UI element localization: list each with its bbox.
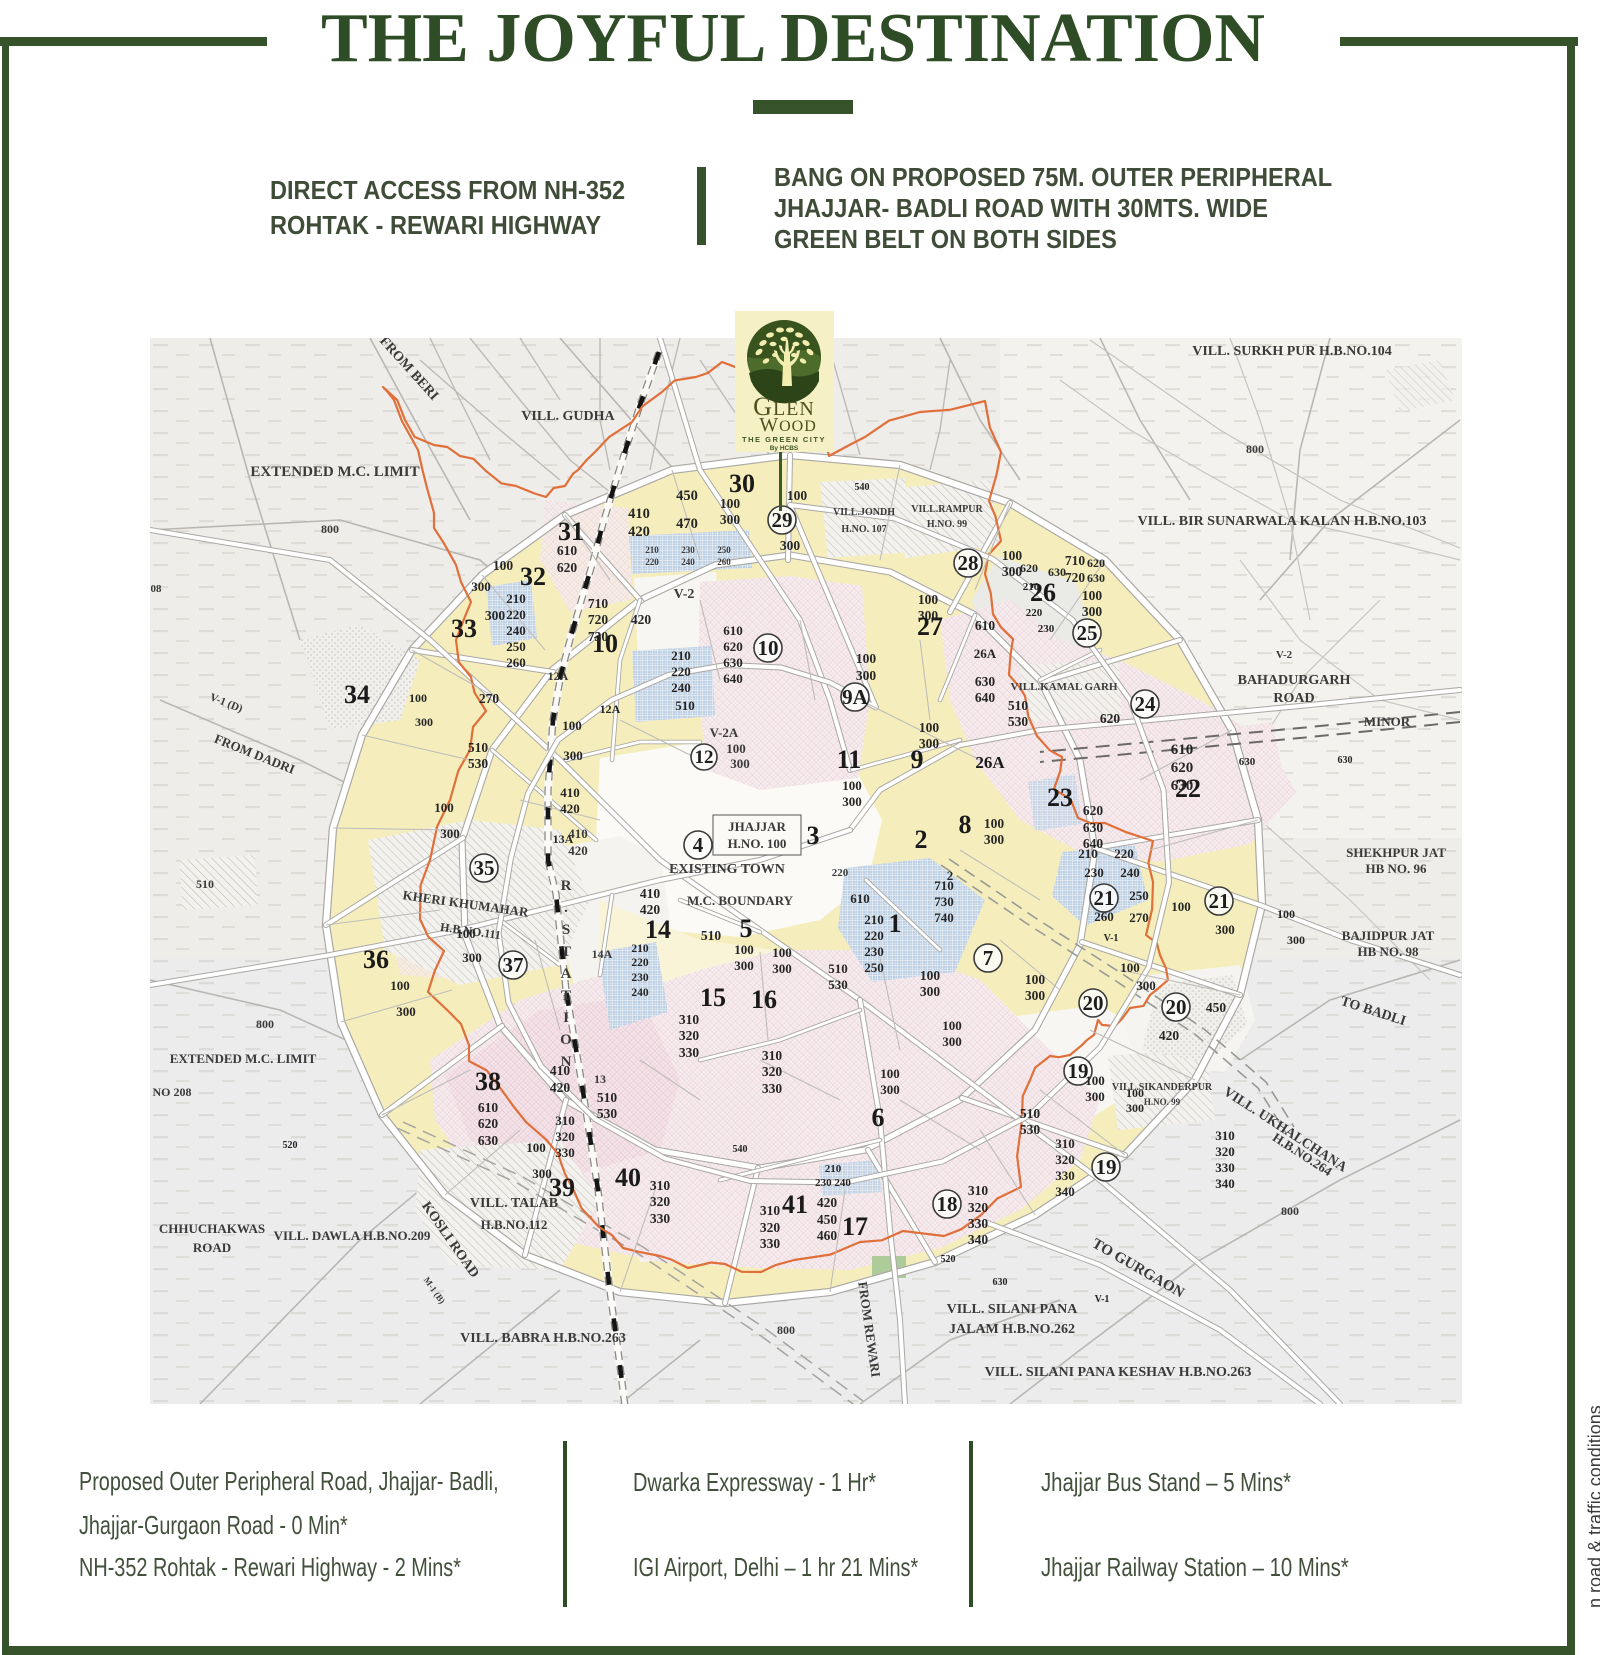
svg-text:340: 340 <box>1055 1184 1075 1199</box>
svg-text:630: 630 <box>1083 820 1104 835</box>
svg-text:V-1: V-1 <box>1095 1294 1110 1305</box>
svg-text:100: 100 <box>920 968 941 983</box>
svg-text:VILL. SILANI PANA KESHAV H.B.: VILL. SILANI PANA KESHAV H.B.NO.263 <box>985 1365 1252 1380</box>
svg-text:310: 310 <box>650 1178 671 1193</box>
svg-text:520: 520 <box>941 1254 956 1265</box>
svg-text:39: 39 <box>549 1173 575 1202</box>
svg-text:300: 300 <box>1082 604 1103 619</box>
svg-text:17: 17 <box>842 1212 868 1241</box>
svg-text:450: 450 <box>1206 1000 1227 1015</box>
svg-text:H.NO. 99: H.NO. 99 <box>927 519 967 530</box>
svg-text:220: 220 <box>645 557 659 567</box>
svg-text:610: 610 <box>478 1100 499 1115</box>
svg-text:VILL. TALAB: VILL. TALAB <box>470 1196 558 1211</box>
svg-text:300: 300 <box>856 668 877 683</box>
svg-text:33: 33 <box>451 614 477 643</box>
svg-text:220: 220 <box>832 867 849 879</box>
svg-text:310: 310 <box>679 1012 700 1027</box>
svg-text:720: 720 <box>1065 570 1086 585</box>
svg-text:330: 330 <box>679 1045 700 1060</box>
svg-text:30: 30 <box>729 469 755 498</box>
svg-text:26A: 26A <box>974 646 997 661</box>
svg-text:220: 220 <box>671 664 691 679</box>
svg-text:300: 300 <box>563 748 583 763</box>
svg-text:460: 460 <box>817 1228 838 1243</box>
svg-text:VILL. SURKH PUR H.B.NO.104: VILL. SURKH PUR H.B.NO.104 <box>1192 344 1392 359</box>
svg-text:420: 420 <box>628 524 650 540</box>
svg-text:HB NO. 98: HB NO. 98 <box>1357 944 1419 959</box>
svg-text:450: 450 <box>817 1212 838 1227</box>
svg-text:310: 310 <box>968 1183 989 1198</box>
svg-text:250: 250 <box>864 960 884 975</box>
svg-text:BAJIDPUR JAT: BAJIDPUR JAT <box>1342 928 1435 943</box>
svg-text:1: 1 <box>889 909 902 938</box>
svg-text:24: 24 <box>1135 692 1157 716</box>
svg-text:JALAM H.B.NO.262: JALAM H.B.NO.262 <box>949 1322 1075 1337</box>
svg-text:THE GREEN CITY: THE GREEN CITY <box>742 435 826 444</box>
svg-text:WOOD: WOOD <box>759 414 817 436</box>
svg-text:240: 240 <box>506 623 526 638</box>
svg-text:100: 100 <box>1025 972 1046 987</box>
svg-text:13: 13 <box>594 1072 606 1086</box>
svg-text:100: 100 <box>390 978 410 993</box>
svg-text:7: 7 <box>983 946 994 970</box>
svg-text:230: 230 <box>631 972 649 984</box>
svg-text:240: 240 <box>671 680 691 695</box>
svg-text:V-1: V-1 <box>1104 933 1119 944</box>
svg-text:420: 420 <box>817 1195 838 1210</box>
svg-text:10: 10 <box>758 636 779 660</box>
svg-text:300: 300 <box>440 826 460 841</box>
svg-text:320: 320 <box>679 1028 700 1043</box>
svg-text:640: 640 <box>975 690 996 705</box>
svg-text:VILL.RAMPUR: VILL.RAMPUR <box>911 504 983 515</box>
svg-text:300: 300 <box>415 715 433 729</box>
svg-text:20: 20 <box>1166 995 1187 1019</box>
svg-text:420: 420 <box>640 902 661 917</box>
svg-text:620: 620 <box>478 1116 499 1131</box>
svg-text:21: 21 <box>1094 886 1115 910</box>
svg-text:260: 260 <box>717 557 731 567</box>
svg-text:230: 230 <box>1038 623 1055 635</box>
svg-text:12A: 12A <box>548 669 569 683</box>
svg-text:By HCBS: By HCBS <box>770 445 799 452</box>
svg-text:630: 630 <box>1239 756 1256 768</box>
svg-text:35: 35 <box>474 856 495 880</box>
svg-text:330: 330 <box>1055 1168 1075 1183</box>
svg-text:620: 620 <box>1171 760 1194 776</box>
svg-text:300: 300 <box>1025 988 1046 1003</box>
svg-text:210: 210 <box>864 912 884 927</box>
svg-text:640: 640 <box>723 671 743 686</box>
svg-text:100: 100 <box>434 800 454 815</box>
svg-text:630: 630 <box>1087 571 1105 585</box>
svg-text:320: 320 <box>760 1220 781 1235</box>
svg-text:19: 19 <box>1096 1155 1117 1179</box>
svg-text:14: 14 <box>645 915 671 944</box>
svg-text:540: 540 <box>855 482 870 493</box>
svg-text:410: 410 <box>640 886 661 901</box>
svg-text:38: 38 <box>475 1067 501 1096</box>
svg-text:330: 330 <box>760 1236 781 1251</box>
svg-text:6: 6 <box>872 1103 885 1132</box>
svg-text:470: 470 <box>676 516 698 532</box>
svg-text:300: 300 <box>772 961 792 976</box>
svg-text:340: 340 <box>968 1232 989 1247</box>
svg-text:220: 220 <box>1114 846 1134 861</box>
svg-text:40: 40 <box>615 1163 641 1192</box>
svg-text:ROAD: ROAD <box>193 1240 231 1255</box>
svg-text:210: 210 <box>506 591 526 606</box>
svg-text:620: 620 <box>1083 803 1104 818</box>
svg-text:800: 800 <box>777 1323 795 1337</box>
svg-text:HB NO. 96: HB NO. 96 <box>1365 861 1427 876</box>
svg-text:100: 100 <box>1277 907 1295 921</box>
svg-text:220: 220 <box>631 957 649 969</box>
svg-text:100: 100 <box>493 558 514 573</box>
svg-text:300: 300 <box>1126 1101 1144 1115</box>
svg-text:330: 330 <box>1215 1160 1235 1175</box>
svg-text:3: 3 <box>807 821 820 850</box>
svg-text:720: 720 <box>588 612 609 627</box>
svg-text:210: 210 <box>671 648 691 663</box>
svg-text:510: 510 <box>828 961 848 976</box>
svg-text:ROAD: ROAD <box>1273 691 1314 706</box>
svg-text:210: 210 <box>631 943 649 955</box>
svg-text:100: 100 <box>1120 960 1140 975</box>
svg-text:610: 610 <box>723 623 743 638</box>
svg-text:270: 270 <box>1129 910 1149 925</box>
svg-text:100: 100 <box>984 816 1005 831</box>
svg-text:SHEKHPUR JAT: SHEKHPUR JAT <box>1346 845 1446 860</box>
svg-text:340: 340 <box>1215 1176 1235 1191</box>
svg-text:.: . <box>564 900 568 916</box>
svg-text:250: 250 <box>506 639 526 654</box>
svg-text:300: 300 <box>730 756 750 771</box>
svg-text:230 240: 230 240 <box>815 1177 851 1189</box>
svg-text:CHHUCHAKWAS: CHHUCHAKWAS <box>159 1221 265 1236</box>
svg-text:EXTENDED M.C. LIMIT: EXTENDED M.C. LIMIT <box>250 464 419 480</box>
svg-text:510: 510 <box>701 928 722 943</box>
svg-text:37: 37 <box>503 953 524 977</box>
svg-text:41: 41 <box>782 1190 808 1219</box>
svg-text:210: 210 <box>825 1163 842 1175</box>
svg-text:300: 300 <box>720 512 741 527</box>
svg-text:300: 300 <box>471 579 491 594</box>
svg-text:620: 620 <box>1020 561 1038 575</box>
svg-text:VILL. SILANI PANA: VILL. SILANI PANA <box>947 1302 1079 1317</box>
svg-text:300: 300 <box>1136 978 1156 993</box>
svg-text:530: 530 <box>1008 714 1029 729</box>
svg-text:320: 320 <box>968 1200 989 1215</box>
svg-text:420: 420 <box>1159 1028 1180 1043</box>
svg-text:320: 320 <box>650 1194 671 1209</box>
svg-text:240: 240 <box>631 987 649 999</box>
svg-text:510: 510 <box>468 740 489 755</box>
svg-text:100: 100 <box>1171 899 1191 914</box>
svg-text:18: 18 <box>937 1192 958 1216</box>
svg-text:16: 16 <box>751 985 777 1014</box>
svg-text:220: 220 <box>506 607 526 622</box>
svg-text:I: I <box>563 1010 569 1026</box>
svg-text:32: 32 <box>520 562 546 591</box>
svg-text:630: 630 <box>1171 778 1194 794</box>
svg-text:31: 31 <box>558 517 584 546</box>
svg-text:A: A <box>561 966 572 982</box>
svg-text:25: 25 <box>1077 621 1098 645</box>
svg-text:VILL. BIR SUNARWALA KALAN H: VILL. BIR SUNARWALA KALAN H.B.NO.103 <box>1138 514 1427 529</box>
svg-text:12: 12 <box>695 747 714 768</box>
svg-text:300: 300 <box>485 608 506 623</box>
svg-text:MINOR: MINOR <box>1364 714 1411 729</box>
svg-text:NO 208: NO 208 <box>153 1085 192 1099</box>
svg-text:100: 100 <box>842 778 862 793</box>
svg-text:28: 28 <box>958 551 979 575</box>
svg-text:300: 300 <box>942 1034 962 1049</box>
svg-text:JHAJJAR: JHAJJAR <box>728 819 786 834</box>
svg-text:800: 800 <box>256 1017 274 1031</box>
svg-text:300: 300 <box>880 1082 900 1097</box>
svg-text:330: 330 <box>555 1145 575 1160</box>
svg-text:13A: 13A <box>553 832 574 846</box>
svg-text:08: 08 <box>151 583 163 595</box>
svg-text:270: 270 <box>479 691 500 706</box>
svg-text:9A: 9A <box>842 685 869 709</box>
svg-text:310: 310 <box>1215 1128 1235 1143</box>
svg-text:300: 300 <box>842 794 862 809</box>
svg-text:710: 710 <box>1065 553 1086 568</box>
svg-text:300: 300 <box>920 984 941 999</box>
svg-text:800: 800 <box>1246 442 1264 456</box>
svg-text:710: 710 <box>934 878 954 893</box>
svg-text:300: 300 <box>396 1004 416 1019</box>
svg-text:800: 800 <box>321 522 339 536</box>
svg-text:530: 530 <box>1020 1122 1041 1137</box>
svg-text:H.NO. 99: H.NO. 99 <box>1144 1097 1181 1107</box>
svg-text:100: 100 <box>1126 1086 1144 1100</box>
svg-text:300: 300 <box>532 1166 552 1181</box>
svg-text:220: 220 <box>1026 607 1043 619</box>
svg-text:100: 100 <box>856 651 877 666</box>
svg-text:V-2: V-2 <box>1276 649 1293 661</box>
svg-text:540: 540 <box>733 1144 748 1155</box>
svg-text:310: 310 <box>760 1203 781 1218</box>
svg-text:300: 300 <box>918 608 939 623</box>
svg-text:H.NO. 100: H.NO. 100 <box>728 836 787 851</box>
svg-text:12A: 12A <box>600 702 621 716</box>
svg-text:800: 800 <box>1281 1204 1299 1218</box>
svg-text:320: 320 <box>555 1129 575 1144</box>
svg-text:34: 34 <box>344 680 370 709</box>
svg-text:21: 21 <box>1209 889 1230 913</box>
svg-text:310: 310 <box>1055 1136 1075 1151</box>
svg-text:4: 4 <box>693 833 704 857</box>
svg-text:530: 530 <box>828 977 848 992</box>
svg-text:220: 220 <box>864 928 884 943</box>
svg-text:510: 510 <box>675 698 695 713</box>
svg-text:610: 610 <box>557 543 578 558</box>
svg-text:620: 620 <box>1100 711 1121 726</box>
svg-text:740: 740 <box>934 910 954 925</box>
svg-text:100: 100 <box>409 691 427 705</box>
svg-text:310: 310 <box>762 1048 783 1063</box>
svg-text:100: 100 <box>1082 588 1103 603</box>
svg-text:8: 8 <box>959 810 972 839</box>
svg-text:VILL. BABRA H.B.NO.263: VILL. BABRA H.B.NO.263 <box>460 1331 626 1346</box>
svg-text:610: 610 <box>850 891 870 906</box>
svg-text:S: S <box>562 922 570 938</box>
svg-text:300: 300 <box>780 538 801 553</box>
svg-text:VILL.JONDH: VILL.JONDH <box>833 507 895 518</box>
svg-text:300: 300 <box>984 832 1005 847</box>
svg-text:100: 100 <box>787 488 808 503</box>
svg-text:5: 5 <box>740 914 753 943</box>
svg-text:210: 210 <box>1023 581 1040 593</box>
svg-text:230: 230 <box>1084 865 1104 880</box>
svg-text:20: 20 <box>1083 991 1104 1015</box>
svg-text:420: 420 <box>550 1080 571 1095</box>
svg-text:320: 320 <box>1215 1144 1235 1159</box>
svg-text:630: 630 <box>1338 755 1353 766</box>
svg-text:T: T <box>561 988 571 1004</box>
svg-text:H.NO. 107: H.NO. 107 <box>841 524 886 535</box>
svg-text:300: 300 <box>1085 1089 1105 1104</box>
svg-text:630: 630 <box>1048 565 1066 579</box>
svg-text:410: 410 <box>560 785 580 800</box>
svg-text:100: 100 <box>734 942 754 957</box>
svg-text:530: 530 <box>597 1106 618 1121</box>
svg-text:330: 330 <box>650 1211 671 1226</box>
svg-text:100: 100 <box>1085 1073 1105 1088</box>
svg-text:630: 630 <box>723 655 743 670</box>
svg-text:BAHADURGARH: BAHADURGARH <box>1238 673 1351 688</box>
svg-text:300: 300 <box>919 736 940 751</box>
svg-text:VILL.KAMAL GARH: VILL.KAMAL GARH <box>1011 681 1118 693</box>
svg-text:M.C. BOUNDARY: M.C. BOUNDARY <box>687 893 794 908</box>
svg-text:630: 630 <box>993 1277 1008 1288</box>
svg-text:H.B.NO.112: H.B.NO.112 <box>481 1217 548 1232</box>
svg-text:510: 510 <box>1008 698 1029 713</box>
svg-text:EXTENDED M.C. LIMIT: EXTENDED M.C. LIMIT <box>170 1051 317 1066</box>
svg-text:610: 610 <box>975 618 996 633</box>
svg-text:510: 510 <box>196 877 214 891</box>
svg-text:100: 100 <box>942 1018 962 1033</box>
svg-text:VILL. DAWLA H.B.NO.209: VILL. DAWLA H.B.NO.209 <box>274 1228 431 1243</box>
svg-text:O: O <box>560 1032 572 1048</box>
svg-text:V-2: V-2 <box>674 587 695 602</box>
svg-text:710: 710 <box>588 596 609 611</box>
svg-text:250: 250 <box>1129 888 1149 903</box>
svg-text:240: 240 <box>681 557 695 567</box>
svg-text:260: 260 <box>506 655 526 670</box>
svg-text:260: 260 <box>1094 909 1114 924</box>
svg-text:330: 330 <box>968 1216 989 1231</box>
svg-text:36: 36 <box>363 945 389 974</box>
svg-text:230: 230 <box>681 545 695 555</box>
svg-text:100: 100 <box>918 592 939 607</box>
svg-text:15: 15 <box>700 983 726 1012</box>
svg-text:300: 300 <box>1215 922 1235 937</box>
svg-text:300: 300 <box>462 950 482 965</box>
svg-text:26A: 26A <box>975 753 1005 772</box>
svg-text:T: T <box>561 944 571 960</box>
svg-text:100: 100 <box>726 741 746 756</box>
svg-text:530: 530 <box>468 756 489 771</box>
svg-text:620: 620 <box>1087 556 1105 570</box>
svg-text:210: 210 <box>645 545 659 555</box>
svg-text:VILL. GUDHA: VILL. GUDHA <box>521 409 615 424</box>
svg-text:510: 510 <box>597 1090 618 1105</box>
svg-text:100: 100 <box>880 1066 900 1081</box>
svg-text:300: 300 <box>734 958 754 973</box>
svg-text:210: 210 <box>1078 846 1098 861</box>
svg-text:630: 630 <box>478 1133 499 1148</box>
svg-text:730: 730 <box>934 894 954 909</box>
svg-text:V-2A: V-2A <box>710 725 739 740</box>
svg-text:610: 610 <box>1171 742 1194 758</box>
svg-text:410: 410 <box>550 1063 571 1078</box>
svg-text:100: 100 <box>526 1140 546 1155</box>
svg-text:520: 520 <box>283 1140 298 1151</box>
svg-text:EXISTING TOWN: EXISTING TOWN <box>669 862 785 877</box>
svg-text:230: 230 <box>864 944 884 959</box>
svg-text:310: 310 <box>555 1113 575 1128</box>
svg-text:420: 420 <box>631 612 652 627</box>
svg-text:240: 240 <box>1120 865 1140 880</box>
svg-text:14A: 14A <box>592 947 613 961</box>
svg-text:R: R <box>561 878 572 894</box>
svg-text:320: 320 <box>762 1064 783 1079</box>
svg-text:29: 29 <box>772 508 793 532</box>
svg-text:300: 300 <box>1287 933 1305 947</box>
svg-text:410: 410 <box>628 506 650 522</box>
svg-text:730: 730 <box>588 629 609 644</box>
svg-text:11: 11 <box>837 745 862 774</box>
svg-text:450: 450 <box>676 488 698 504</box>
svg-text:620: 620 <box>557 560 578 575</box>
svg-text:100: 100 <box>562 718 582 733</box>
svg-text:420: 420 <box>560 801 580 816</box>
svg-text:23: 23 <box>1047 783 1073 812</box>
svg-text:250: 250 <box>717 545 731 555</box>
svg-text:510: 510 <box>1020 1106 1041 1121</box>
svg-text:620: 620 <box>723 639 743 654</box>
svg-text:2: 2 <box>915 825 928 854</box>
svg-text:100: 100 <box>456 926 476 941</box>
svg-text:100: 100 <box>919 720 940 735</box>
svg-text:330: 330 <box>762 1081 783 1096</box>
svg-text:100: 100 <box>720 496 741 511</box>
svg-text:100: 100 <box>772 945 792 960</box>
svg-text:630: 630 <box>975 674 996 689</box>
svg-text:320: 320 <box>1055 1152 1075 1167</box>
